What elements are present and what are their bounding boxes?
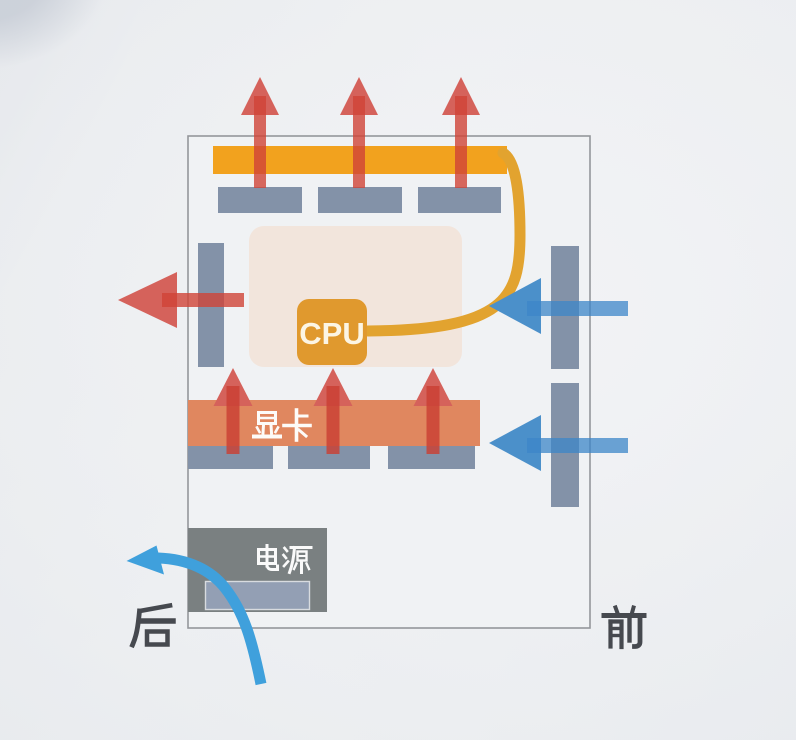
svg-text:CPU: CPU	[299, 316, 364, 351]
